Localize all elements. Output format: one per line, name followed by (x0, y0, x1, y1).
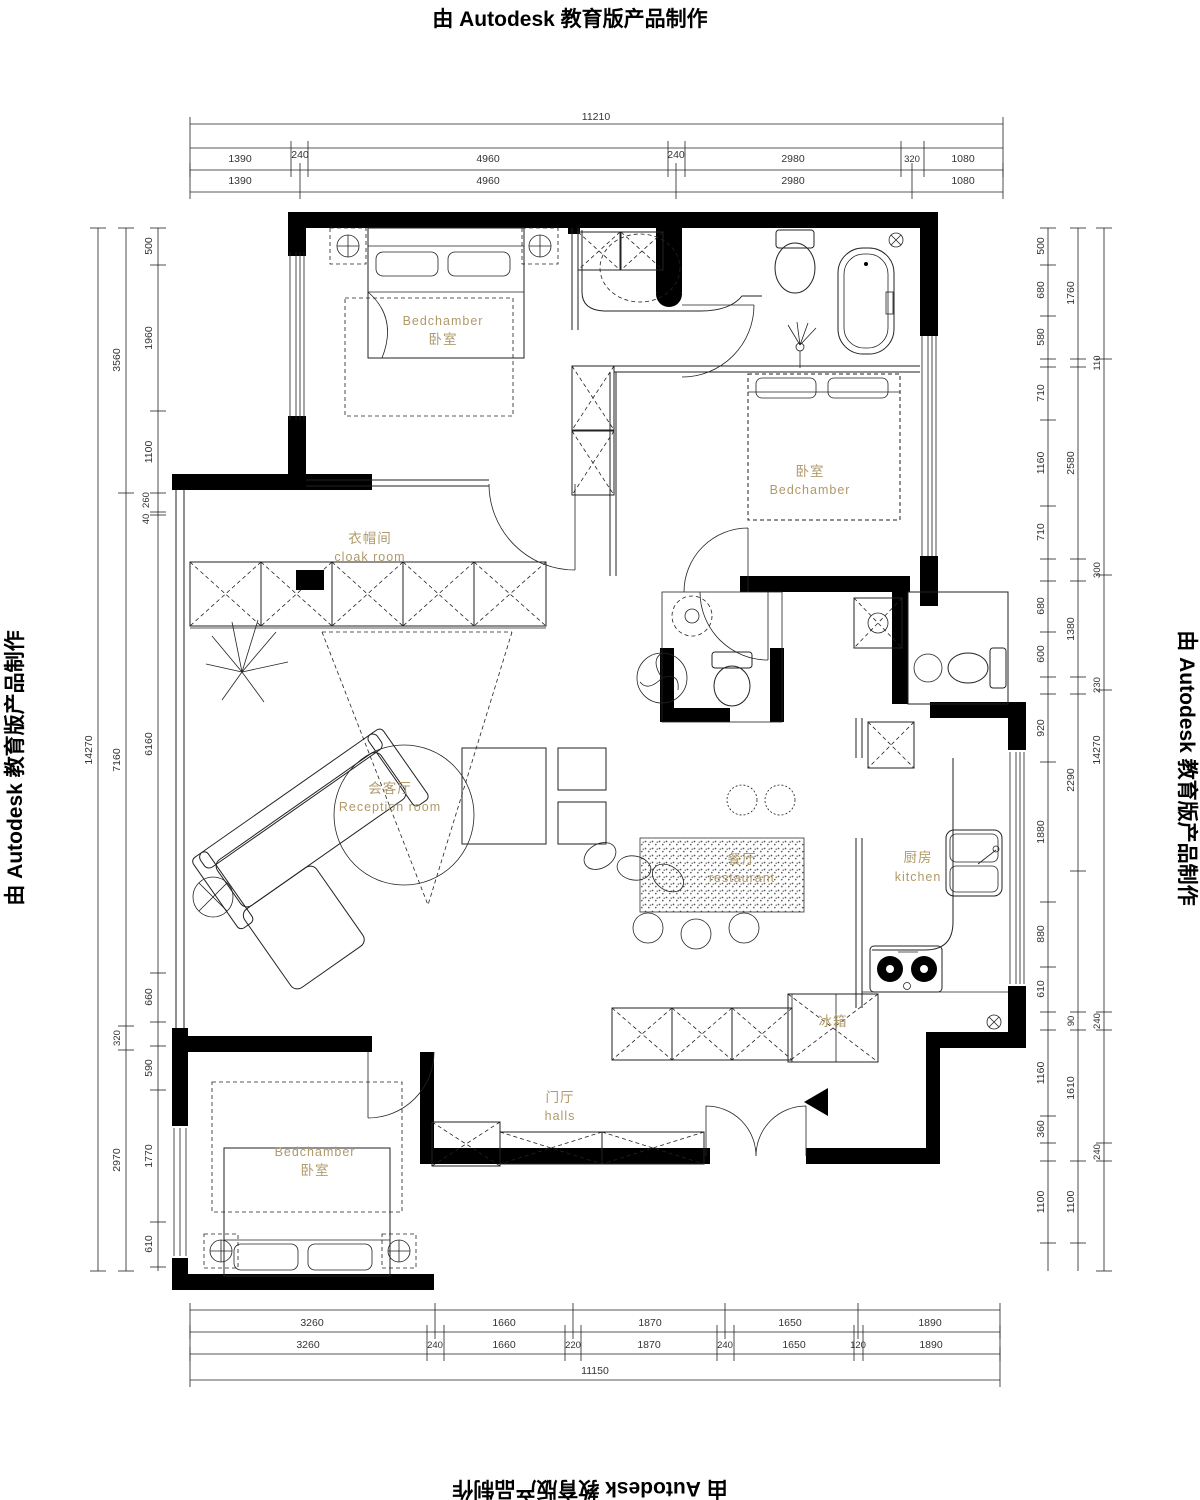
dim: 230 (1092, 677, 1103, 693)
dim: 2580 (1065, 451, 1077, 475)
dim: 120 (850, 1340, 866, 1351)
dim: 1880 (1035, 820, 1047, 844)
room-label-fridge-zh: 冰箱 (819, 1014, 848, 1029)
dim: 220 (565, 1340, 581, 1351)
dim: 1380 (1065, 617, 1077, 641)
room-labels: Bedchamber 卧室 卧室 Bedchamber 衣帽间 cloak ro… (275, 314, 942, 1178)
dim-bottom-overall: 11150 (581, 1365, 609, 1377)
room-label-bedroom1-en: Bedchamber (403, 314, 484, 328)
dim: 610 (143, 1235, 155, 1253)
dim: 3260 (296, 1339, 320, 1351)
kitchen-fixtures (870, 758, 1002, 1029)
dim: 680 (1035, 597, 1047, 615)
dim: 240 (1092, 1144, 1103, 1160)
dimension-lines (98, 124, 1104, 1380)
cabinet-safe (296, 570, 324, 590)
dim: 240 (667, 149, 685, 161)
dim: 240 (427, 1340, 443, 1351)
dim: 1160 (1035, 1062, 1047, 1085)
dim: 1080 (951, 175, 975, 187)
dim: 600 (1035, 645, 1047, 663)
dim: 110 (1092, 355, 1103, 370)
dim: 1760 (1065, 281, 1077, 305)
wc-fixtures (637, 592, 782, 722)
room-label-bedroom3-en: Bedchamber (275, 1145, 356, 1159)
dim: 590 (143, 1059, 155, 1077)
dim: 1890 (919, 1339, 943, 1351)
dim: 500 (1035, 237, 1047, 255)
room-label-bedroom2-en: Bedchamber (770, 483, 851, 497)
dim: 1080 (951, 153, 975, 165)
dim: 1660 (492, 1339, 516, 1351)
cloakroom-plant (206, 620, 288, 702)
dim: 1890 (918, 1317, 942, 1329)
dims-bottom: 3260 1660 1870 1650 1890 3260 240 1660 2… (296, 1317, 943, 1377)
room-label-bedroom2-zh: 卧室 (796, 463, 825, 479)
dim: 240 (291, 149, 309, 161)
dim: 260 (141, 492, 152, 508)
banner-bottom: 由 Autodesk 教育版产品制作 (452, 1477, 727, 1500)
room-label-dining-en: restaurant (709, 871, 775, 885)
dim: 710 (1035, 523, 1047, 541)
dim: 1390 (228, 153, 252, 165)
dim: 7160 (111, 748, 123, 772)
dim: 2290 (1065, 768, 1077, 792)
dim-right-overall: 14270 (1091, 735, 1103, 764)
banner-top: 由 Autodesk 教育版产品制作 (432, 7, 707, 31)
dim: 2980 (781, 153, 805, 165)
dim: 610 (1035, 980, 1047, 998)
dim: 1870 (637, 1339, 661, 1351)
dim: 4960 (476, 153, 500, 165)
dim: 1100 (143, 441, 155, 464)
room-label-cloak-en: cloak room (334, 550, 405, 564)
dim: 3260 (300, 1317, 324, 1329)
bathroom1-fixtures (582, 230, 903, 368)
room-label-cloak-zh: 衣帽间 (348, 531, 392, 546)
dim: 710 (1035, 384, 1047, 402)
room-label-reception-en: Reception room (339, 800, 441, 814)
room-label-bedroom1-zh: 卧室 (429, 331, 458, 347)
dim: 920 (1035, 719, 1047, 737)
room-label-dining-zh: 餐厅 (728, 852, 757, 867)
dim: 580 (1035, 328, 1047, 346)
wall-pier-bullnose (656, 281, 682, 307)
dim: 660 (143, 988, 155, 1006)
dim: 360 (1035, 1120, 1047, 1138)
dim: 1650 (778, 1317, 802, 1329)
dim: 1960 (143, 326, 155, 350)
dim: 2970 (111, 1148, 123, 1172)
banner-right: 由 Autodesk 教育版产品制作 (1175, 630, 1199, 905)
dining-furniture (579, 785, 804, 949)
dim: 1770 (143, 1144, 155, 1168)
dim: 1660 (492, 1317, 516, 1329)
dim: 1390 (228, 175, 252, 187)
dim: 320 (904, 154, 920, 165)
dim: 1650 (782, 1339, 806, 1351)
bedroom3-furniture (204, 1082, 416, 1276)
dim: 1610 (1065, 1076, 1077, 1100)
room-label-hall-zh: 门厅 (546, 1090, 575, 1105)
dim-top-overall: 11210 (582, 111, 611, 123)
entry-arrow (804, 1088, 828, 1116)
dim: 240 (1092, 1013, 1103, 1029)
windows (174, 252, 1024, 1256)
bathroom2-fixtures (854, 598, 1006, 688)
dim: 1100 (1065, 1191, 1077, 1214)
doors (368, 305, 828, 1156)
dim: 1160 (1035, 452, 1047, 475)
dim: 4960 (476, 175, 500, 187)
dim: 320 (112, 1030, 123, 1046)
dimension-ticks (90, 117, 1112, 1387)
dims-left: 14270 3560 7160 320 2970 500 1960 1100 2… (83, 237, 155, 1253)
dim: 6160 (143, 732, 155, 756)
dim: 880 (1035, 925, 1047, 943)
bedroom2-furniture (748, 374, 900, 520)
dim: 1100 (1035, 1191, 1047, 1214)
dims-top: 11210 1390 240 4960 240 2980 320 1080 13… (228, 111, 975, 187)
room-label-bedroom3-zh: 卧室 (301, 1162, 330, 1178)
dim: 40 (141, 514, 152, 525)
dim: 3560 (111, 348, 123, 372)
dim: 240 (717, 1340, 733, 1351)
dim-left-overall: 14270 (83, 735, 95, 764)
room-label-kitchen-en: kitchen (895, 870, 942, 884)
dim: 500 (143, 237, 155, 255)
dims-right: 500 680 580 710 1160 710 680 600 920 188… (1035, 237, 1103, 1213)
floorplan-drawing: 由 Autodesk 教育版产品制作 由 Autodesk 教育版产品制作 由 … (0, 0, 1200, 1500)
interior-walls (176, 228, 1008, 1028)
room-label-kitchen-zh: 厨房 (904, 850, 933, 865)
floorplan-page: 由 Autodesk 教育版产品制作 由 Autodesk 教育版产品制作 由 … (0, 0, 1200, 1500)
dim: 1870 (638, 1317, 662, 1329)
dim: 300 (1092, 562, 1103, 578)
banner-left: 由 Autodesk 教育版产品制作 (3, 630, 27, 905)
dim: 90 (1066, 1016, 1077, 1027)
room-label-reception-zh: 会客厅 (368, 780, 412, 796)
dim: 680 (1035, 281, 1047, 299)
dim: 2980 (781, 175, 805, 187)
room-label-hall-en: halls (545, 1109, 576, 1123)
